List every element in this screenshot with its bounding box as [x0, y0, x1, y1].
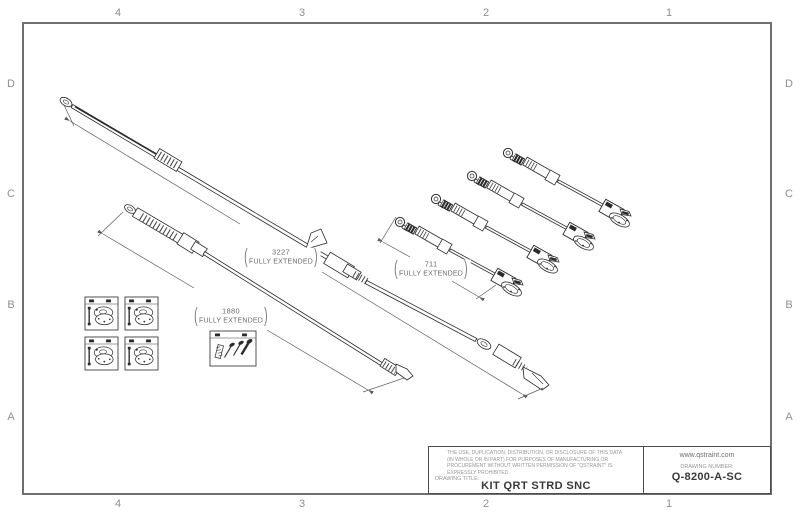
anchor-bracket-box-2 — [125, 297, 158, 330]
fastener-box — [210, 331, 256, 366]
close-paren: ) — [314, 247, 317, 267]
open-paren: ( — [194, 306, 197, 326]
anchor-bracket-box-1 — [85, 297, 118, 330]
track-fitting — [599, 199, 632, 230]
drawing-number-label: DRAWING NUMBER: — [680, 464, 733, 470]
track-fitting — [563, 222, 596, 253]
dimension-value: 1880 — [222, 307, 240, 317]
strap-keeper — [154, 149, 182, 172]
track-fitting — [527, 245, 560, 276]
zone-col-top-4: 4 — [115, 7, 121, 19]
zone-col-top-2: 2 — [483, 7, 489, 19]
anchor-bracket-boxes — [85, 297, 158, 370]
zone-col-top-3: 3 — [299, 7, 305, 19]
dimension-value: 711 — [425, 260, 438, 270]
zone-col-bottom-1: 1 — [666, 498, 672, 510]
zone-labels-bottom: 4 3 2 1 — [115, 498, 672, 510]
short-strap-2 — [467, 171, 595, 253]
zone-labels-left: D C B A — [7, 78, 15, 423]
dimension-label-short-strap: ( 711 FULLY EXTENDED ) — [392, 260, 471, 279]
zone-row-right-c: C — [785, 188, 793, 200]
dimension-short-strap — [380, 217, 496, 299]
zone-col-bottom-3: 3 — [299, 498, 305, 510]
title-block-left-cell: THE USE, DUPLICATION, DISTRIBUTION, OR D… — [429, 447, 644, 493]
engineering-drawing-sheet: 4 3 2 1 4 3 2 1 D C B A D C B A — [0, 0, 800, 518]
zone-col-bottom-4: 4 — [115, 498, 121, 510]
zone-row-left-b: B — [7, 299, 14, 311]
zone-row-right-d: D — [785, 78, 793, 90]
strap-end-tip — [523, 367, 549, 390]
zone-row-right-b: B — [785, 299, 792, 311]
drawing-title: KIT QRT STRD SNC — [435, 480, 637, 492]
dimension-note: FULLY EXTENDED — [399, 269, 463, 278]
close-paren: ) — [264, 306, 267, 326]
dimension-label-long-strap: ( 3227 FULLY EXTENDED ) — [242, 248, 321, 267]
open-paren: ( — [244, 247, 247, 267]
strap-end-buckle — [493, 344, 526, 369]
zone-row-right-a: A — [785, 411, 793, 423]
dimension-note: FULLY EXTENDED — [249, 257, 313, 266]
title-block-right-cell: www.qstraint.com DRAWING NUMBER: Q-8200-… — [644, 447, 770, 493]
zone-row-left-d: D — [7, 78, 15, 90]
zone-col-top-1: 1 — [666, 7, 672, 19]
close-paren: ) — [464, 259, 467, 279]
short-strap-4 — [395, 217, 523, 299]
drawing-number: Q-8200-A-SC — [672, 471, 743, 483]
strap-end-tip — [396, 364, 413, 380]
open-paren: ( — [394, 259, 397, 279]
short-strap-1 — [503, 148, 631, 230]
dimension-note: FULLY EXTENDED — [199, 316, 263, 325]
medium-strap-1880 — [123, 203, 413, 380]
dimension-value: 3227 — [272, 248, 290, 258]
anchor-bracket-box-4 — [125, 337, 158, 370]
zone-row-left-c: C — [7, 188, 15, 200]
zone-col-bottom-2: 2 — [483, 498, 489, 510]
strap-adjuster-buckle — [177, 233, 207, 257]
website-url: www.qstraint.com — [680, 452, 735, 459]
legal-notice: THE USE, DUPLICATION, DISTRIBUTION, OR D… — [447, 450, 625, 476]
dimension-label-medium-strap: ( 1880 FULLY EXTENDED ) — [192, 307, 271, 326]
zone-labels-right: D C B A — [785, 78, 793, 423]
title-block: THE USE, DUPLICATION, DISTRIBUTION, OR D… — [428, 446, 771, 494]
zone-row-left-a: A — [7, 411, 15, 423]
zone-labels-top: 4 3 2 1 — [115, 7, 672, 19]
track-fitting — [491, 268, 524, 299]
anchor-bracket-box-3 — [85, 337, 118, 370]
